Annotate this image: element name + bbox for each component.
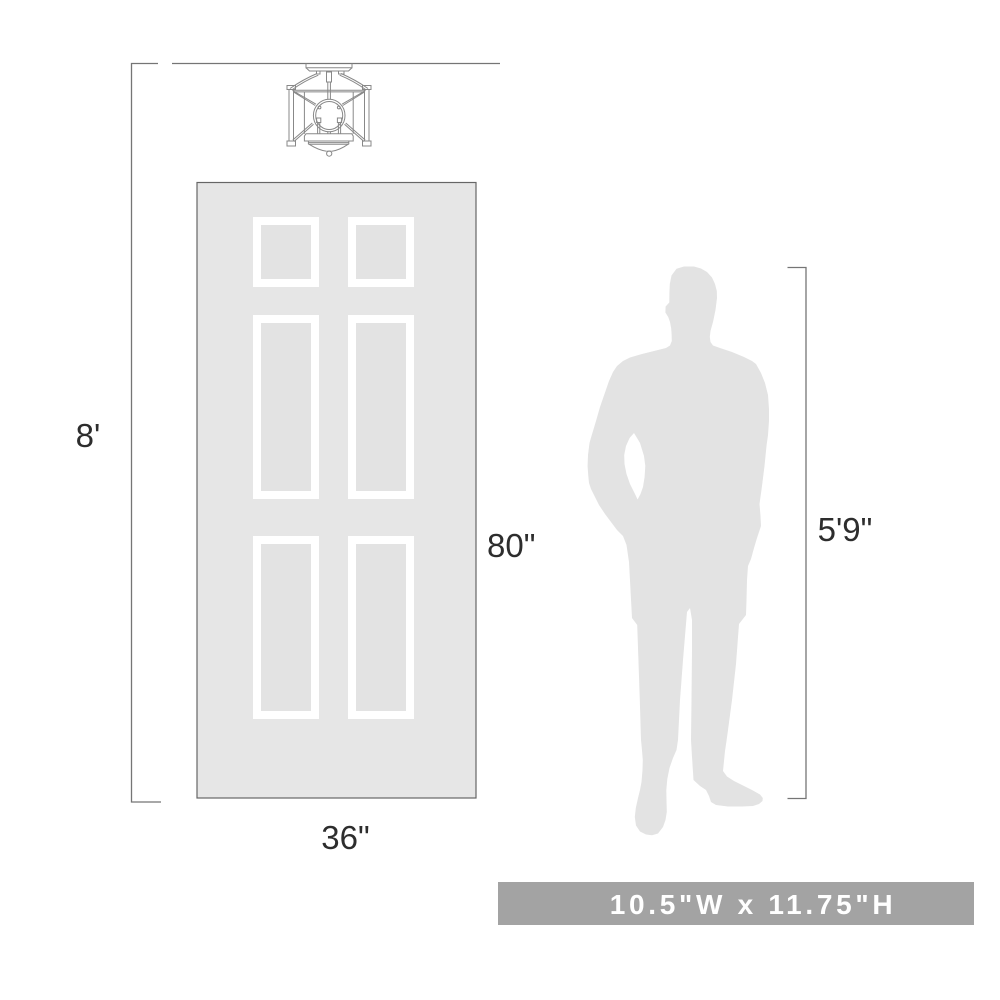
svg-text:36": 36" <box>321 819 369 856</box>
svg-text:10.5"W x 11.75"H: 10.5"W x 11.75"H <box>610 889 897 920</box>
svg-text:5'9": 5'9" <box>818 511 873 548</box>
svg-text:80": 80" <box>487 527 535 564</box>
svg-text:8': 8' <box>76 417 101 454</box>
